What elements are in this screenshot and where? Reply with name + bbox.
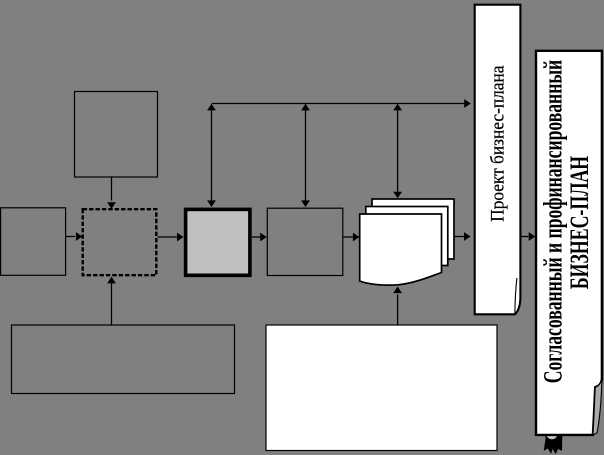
svg-text:Проект бизнес-плана: Проект бизнес-плана bbox=[487, 66, 508, 222]
svg-text:Согласованный и профинансирова: Согласованный и профинансированный bbox=[538, 60, 567, 384]
svg-text:БИЗНЕС-ПЛАН: БИЗНЕС-ПЛАН bbox=[565, 156, 594, 289]
